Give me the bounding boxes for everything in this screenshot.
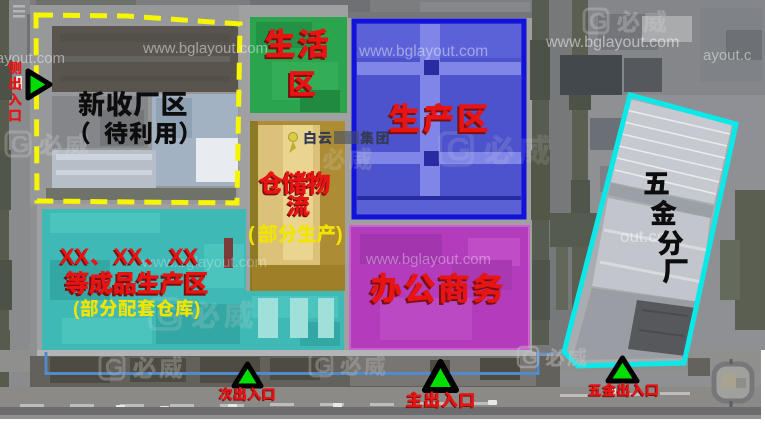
svg-text:G: G <box>589 9 608 36</box>
svg-text:(: ( <box>73 299 80 320</box>
svg-text:XX: XX <box>114 244 144 269</box>
svg-text:G: G <box>446 132 471 168</box>
svg-text:www.bglayout.com: www.bglayout.com <box>142 40 268 57</box>
svg-text:): ) <box>336 224 343 246</box>
svg-text:G: G <box>105 355 124 382</box>
svg-text:XX: XX <box>169 244 199 269</box>
svg-text:out.co: out.co <box>620 227 666 246</box>
svg-text:G: G <box>314 353 331 378</box>
svg-text:www.bglayout.com: www.bglayout.com <box>358 43 488 60</box>
svg-text:(: ( <box>248 224 255 246</box>
svg-text:www.bglayout.com: www.bglayout.com <box>365 251 491 268</box>
svg-text:G: G <box>11 132 30 159</box>
svg-text:ayout.c: ayout.c <box>703 47 752 64</box>
svg-text:G: G <box>522 347 538 369</box>
svg-text:www.bglayout.com: www.bglayout.com <box>545 34 679 51</box>
svg-text:): ) <box>194 299 200 320</box>
svg-text:XX: XX <box>60 244 90 269</box>
svg-text:www.bglayout.com: www.bglayout.com <box>141 254 267 271</box>
